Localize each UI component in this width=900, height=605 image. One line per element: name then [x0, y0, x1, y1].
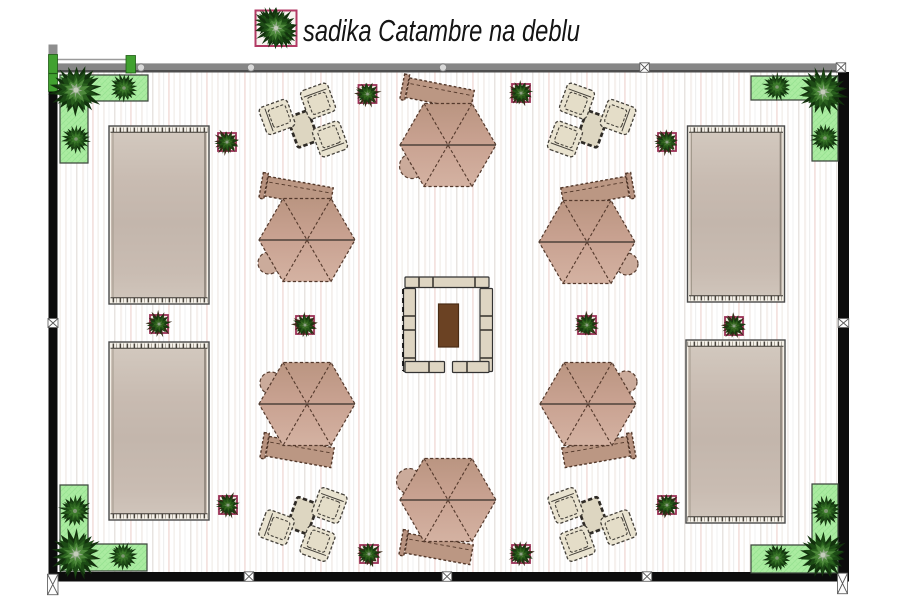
- svg-text:sadika Catambre na deblu: sadika Catambre na deblu: [303, 13, 580, 48]
